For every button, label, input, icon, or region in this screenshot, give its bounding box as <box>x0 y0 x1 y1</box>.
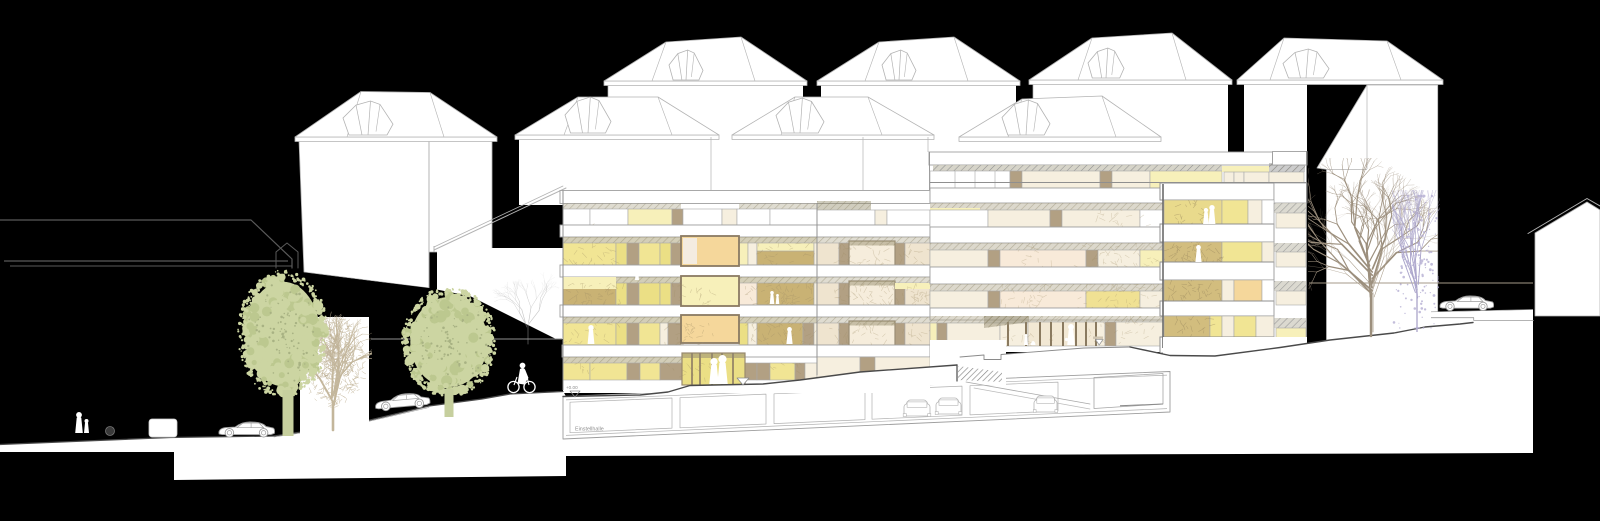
svg-text:+0.00: +0.00 <box>566 385 578 390</box>
svg-text:Einstellhalle: Einstellhalle <box>575 427 604 433</box>
